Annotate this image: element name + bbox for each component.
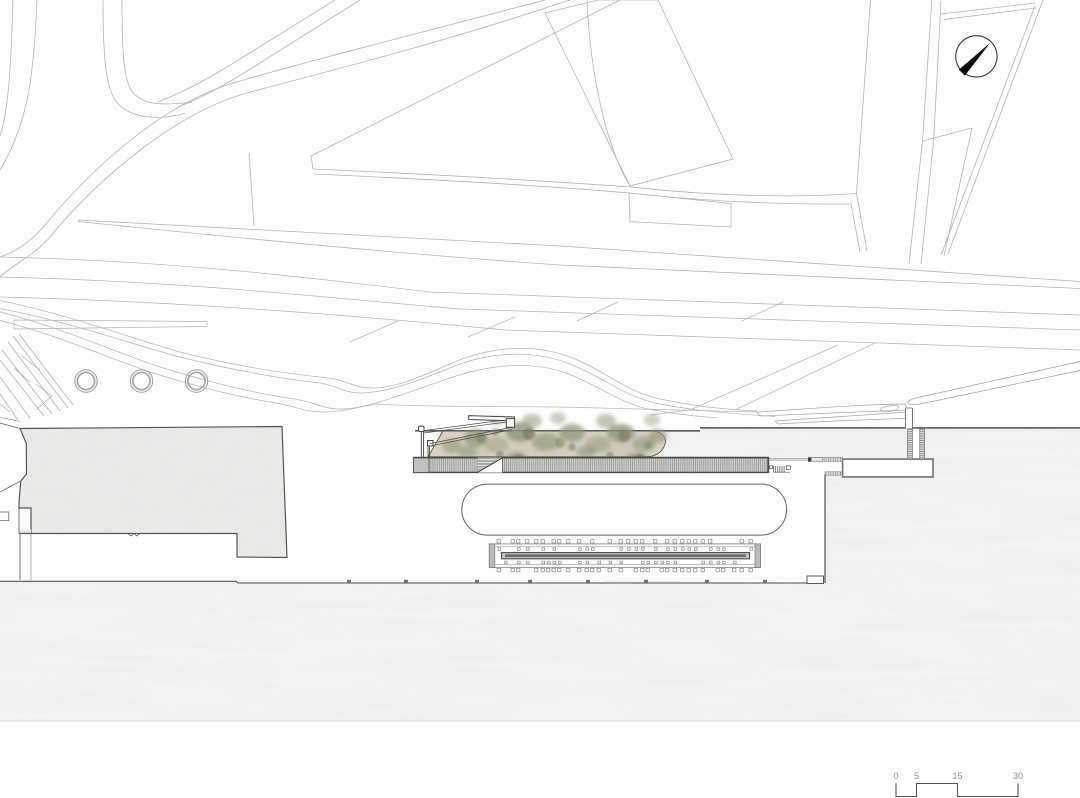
svg-text:15: 15	[952, 771, 962, 781]
svg-text:0: 0	[893, 771, 898, 781]
svg-text:5: 5	[914, 771, 919, 781]
svg-text:30: 30	[1013, 771, 1023, 781]
